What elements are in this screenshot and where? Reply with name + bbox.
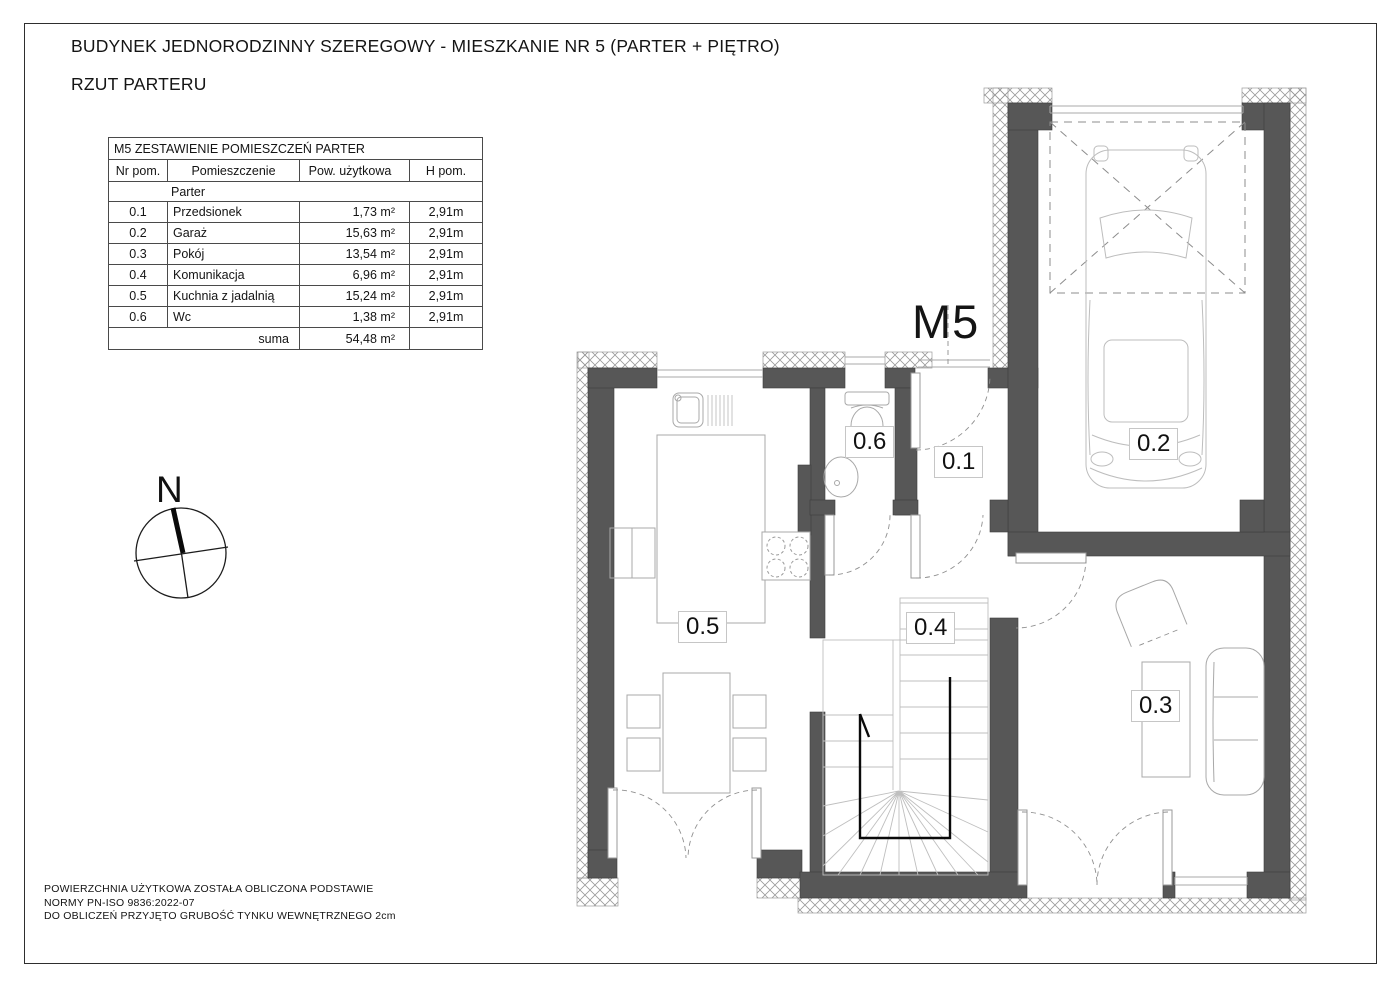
stair-cut-tick: [860, 714, 869, 737]
armchair: [1112, 576, 1188, 649]
kitchen: [610, 393, 810, 793]
vestibule-hall-door: [911, 515, 983, 578]
livingroom-window: [1175, 877, 1247, 885]
stair-cut-line: [860, 677, 950, 838]
footer-note: POWIERZCHNIA UŻYTKOWA ZOSTAŁA OBLICZONA …: [44, 883, 396, 924]
washbasin: [824, 457, 858, 497]
north-arrow: N: [134, 469, 228, 598]
room-label-0-5: 0.5: [678, 611, 727, 643]
car-mirror-right: [1184, 146, 1198, 161]
footer-line: DO OBLICZEŃ PRZYJĘTO GRUBOŚĆ TYNKU WEWNĘ…: [44, 910, 396, 924]
walls: [588, 103, 1290, 898]
room-label-0-6: 0.6: [845, 426, 894, 458]
sofa: [1206, 648, 1264, 795]
kitchen-window: [657, 370, 763, 377]
drawing-sheet: BUDYNEK JEDNORODZINNY SZEREGOWY - MIESZK…: [0, 0, 1400, 989]
garage-parking-zone: [1050, 122, 1245, 293]
car-headlight-left: [1091, 452, 1113, 466]
room-label-0-4: 0.4: [906, 612, 955, 644]
stove: [762, 532, 810, 580]
livingroom-garden-door: [1018, 810, 1172, 885]
living-room: [1112, 576, 1264, 795]
hall-livingroom-door: [1016, 553, 1086, 628]
room-label-0-2: 0.2: [1129, 428, 1178, 460]
chair: [733, 738, 766, 771]
room-label-0-3: 0.3: [1131, 690, 1180, 722]
kitchen-cabinet: [610, 528, 655, 578]
room-label-0-1: 0.1: [934, 446, 983, 478]
footer-line: POWIERZCHNIA UŻYTKOWA ZOSTAŁA OBLICZONA …: [44, 883, 396, 897]
unit-label: M5: [912, 294, 979, 349]
chair: [627, 738, 660, 771]
north-label: N: [156, 469, 183, 510]
chair: [733, 695, 766, 728]
doors: [608, 305, 1172, 885]
dining-table: [627, 673, 766, 793]
north-needle: [173, 508, 183, 553]
entry-door: [911, 373, 990, 450]
footer-line: NORMY PN-ISO 9836:2022-07: [44, 897, 396, 911]
wc-door: [825, 515, 890, 575]
insulation-hatch: [577, 88, 1306, 913]
kitchen-garden-door: [608, 788, 761, 858]
garage-door: [1050, 106, 1243, 113]
wc-window: [845, 357, 885, 364]
chair: [627, 695, 660, 728]
floor-plan: N: [0, 0, 1400, 989]
kitchen-sink: [673, 393, 703, 427]
kitchen-island: [657, 435, 765, 623]
kitchen-drainer: [708, 395, 732, 426]
car-headlight-right: [1179, 452, 1201, 466]
windows: [657, 106, 1247, 885]
car-mirror-left: [1094, 146, 1108, 161]
